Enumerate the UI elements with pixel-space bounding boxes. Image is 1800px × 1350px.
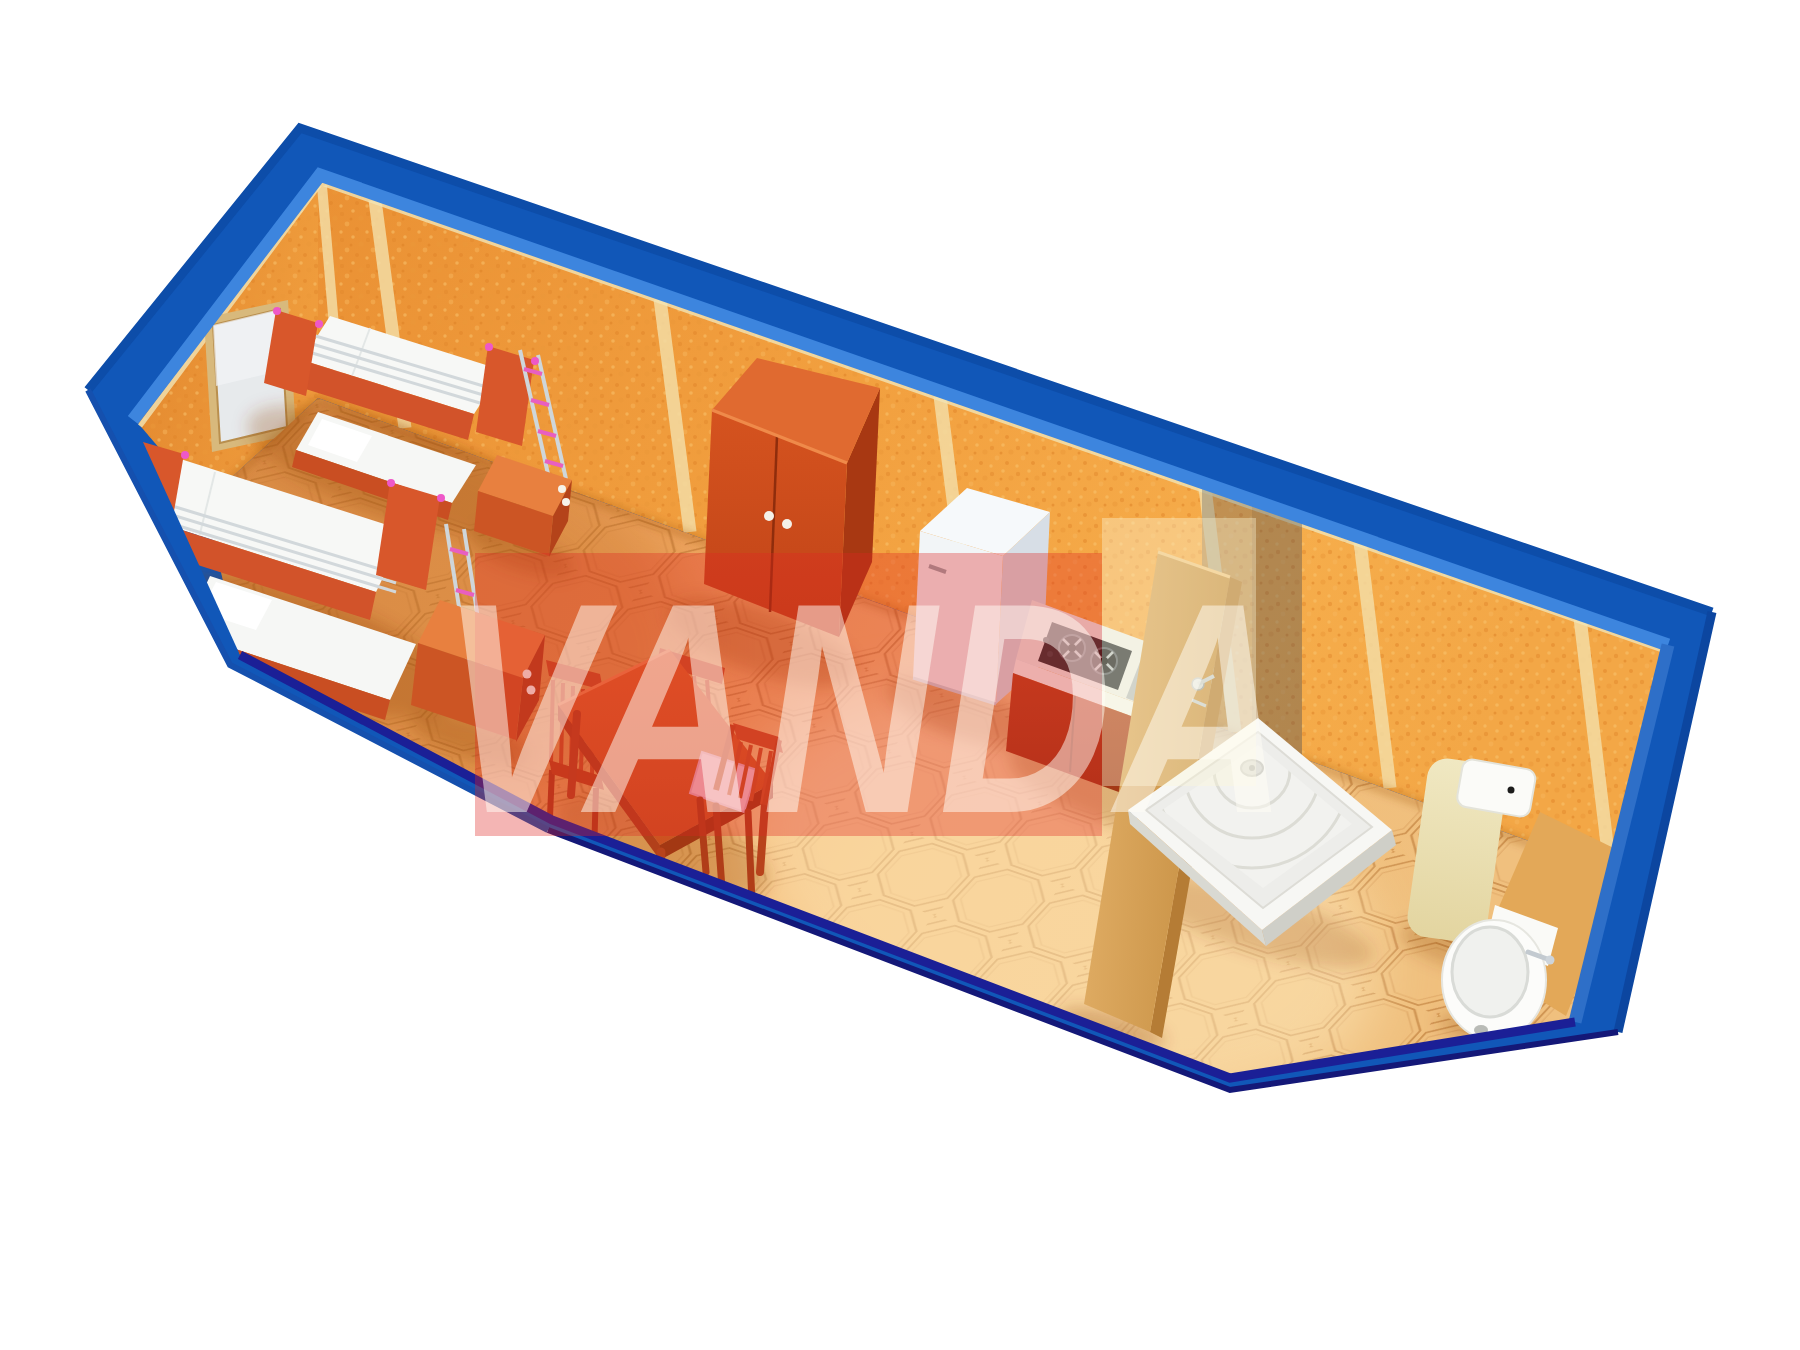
wardrobe-handle (782, 519, 792, 529)
watermark: VANDA (440, 518, 1292, 876)
render-canvas: VANDA (0, 0, 1800, 1350)
watermark-text: VANDA (440, 540, 1292, 876)
wardrobe-handle (764, 511, 774, 521)
flush-button (1508, 787, 1515, 794)
container-house-render: VANDA (0, 0, 1800, 1350)
